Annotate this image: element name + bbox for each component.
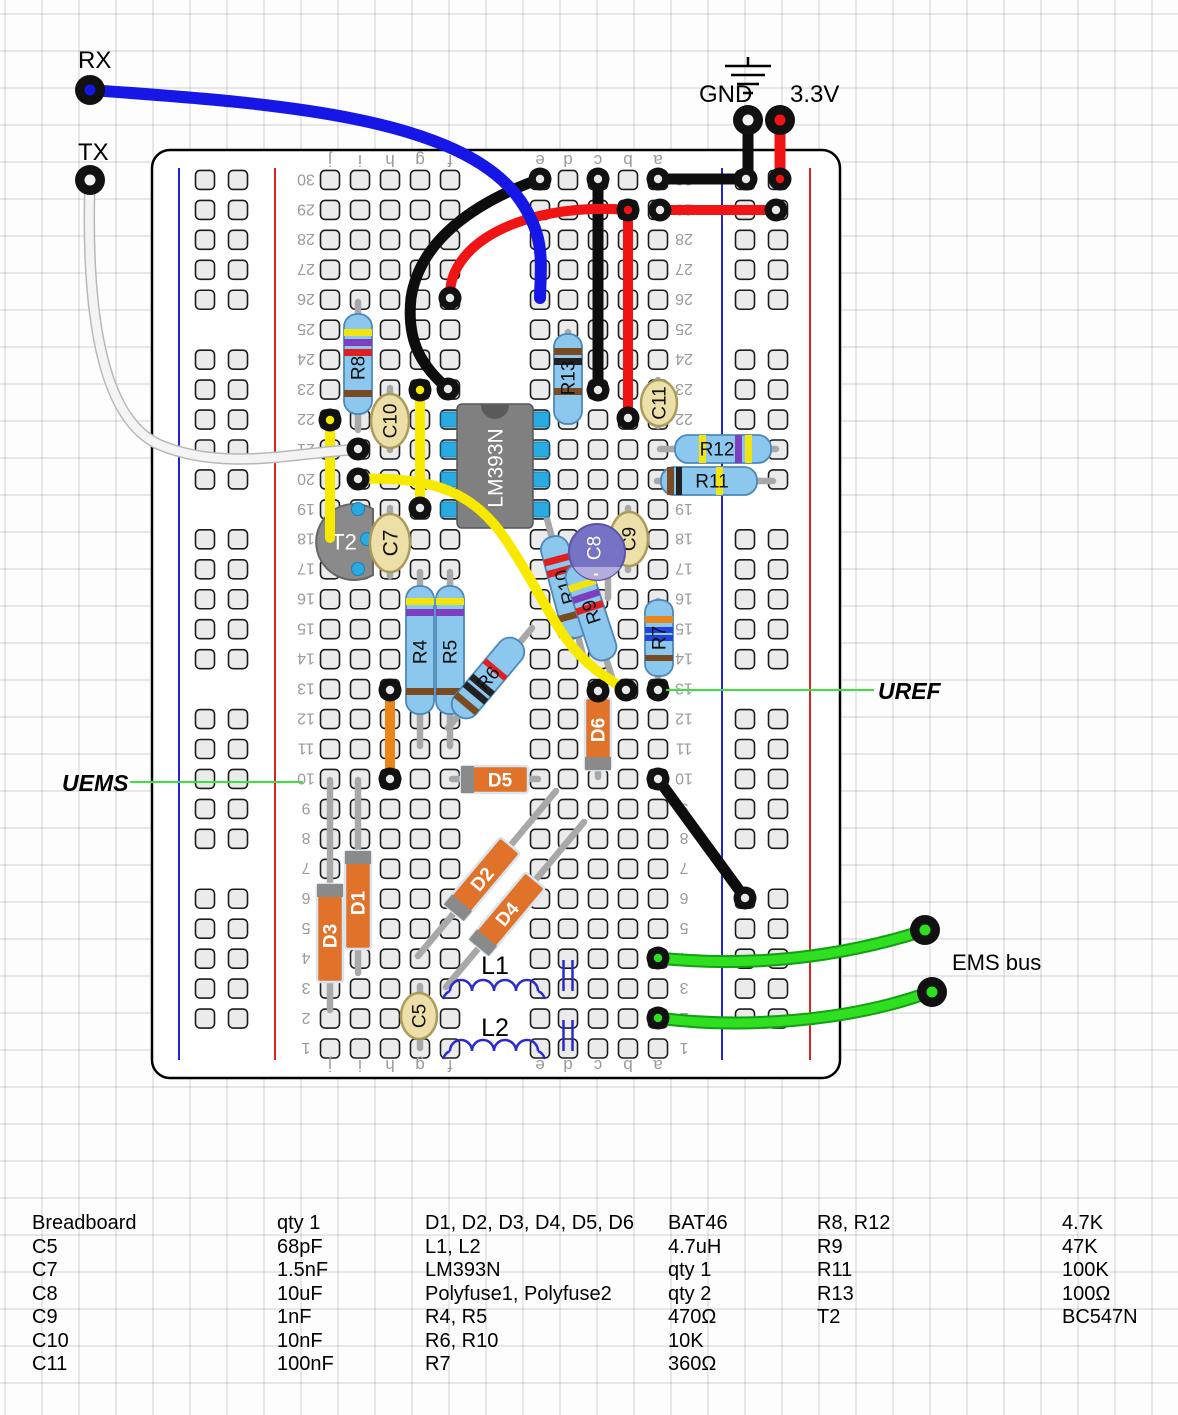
part-name: C7 (32, 1259, 277, 1283)
breadboard-hole (381, 919, 400, 938)
breadboard-hole (736, 230, 755, 249)
breadboard-hole (559, 710, 578, 729)
breadboard-hole (649, 1039, 668, 1058)
resistor-band (406, 688, 434, 695)
breadboard-hole (589, 410, 608, 429)
part-value: 100K (1062, 1259, 1109, 1283)
column-letter-label: b (623, 151, 632, 170)
row-number-label: 26 (675, 290, 693, 307)
row-number-label: 15 (675, 620, 693, 637)
row-number-label: 22 (297, 410, 315, 427)
diode-label: D1 (349, 890, 370, 915)
resistor-band (735, 435, 742, 463)
column-letter-label: i (358, 151, 362, 170)
part-name: L1, L2 (425, 1236, 668, 1260)
row-number-label: 6 (679, 889, 688, 906)
breadboard-hole (769, 230, 788, 249)
row-number-label: 23 (675, 380, 693, 397)
ring-hole (594, 687, 602, 695)
row-number-label: 19 (297, 500, 315, 517)
breadboard-hole (196, 949, 215, 968)
breadboard-hole (531, 680, 550, 699)
breadboard-hole (321, 1039, 340, 1058)
breadboard-hole (441, 320, 460, 339)
breadboard-hole (229, 590, 248, 609)
row-number-label: 3 (679, 979, 688, 996)
resistor-R8[interactable]: R8 (344, 314, 372, 414)
breadboard-hole (589, 1009, 608, 1028)
breadboard-hole (559, 500, 578, 519)
breadboard-hole (411, 769, 430, 788)
breadboard-hole (229, 979, 248, 998)
diode-D5[interactable]: D5 (461, 766, 528, 793)
diode-D6[interactable]: D6 (585, 698, 611, 770)
3v3-label: 3.3V (790, 81, 839, 108)
inductor-label: L2 (481, 1014, 509, 1042)
row-number-label: 12 (675, 709, 693, 726)
ems-pin-hole (927, 987, 938, 998)
row-number-label: 12 (297, 709, 315, 726)
breadboard-hole (196, 829, 215, 848)
breadboard-hole (649, 889, 668, 908)
breadboard-hole (736, 710, 755, 729)
part-name: R7 (425, 1353, 668, 1377)
breadboard-hole (619, 919, 638, 938)
row-number-label: 16 (297, 590, 315, 607)
breadboard-hole (769, 650, 788, 669)
breadboard-hole (769, 710, 788, 729)
breadboard-hole (619, 799, 638, 818)
part-value: 47K (1062, 1236, 1098, 1260)
ring-hole (416, 386, 424, 394)
transistor-pin (352, 563, 365, 576)
row-number-label: 9 (301, 799, 310, 816)
breadboard-hole (531, 710, 550, 729)
breadboard-hole (559, 1009, 578, 1028)
breadboard-hole (229, 260, 248, 279)
resistor-band (667, 467, 674, 495)
row-number-label: 3 (301, 979, 310, 996)
ems-pin-hole (920, 925, 931, 936)
breadboard-hole (769, 380, 788, 399)
ic-pin (533, 442, 549, 457)
parts-row: R6, R1010K (425, 1330, 728, 1354)
resistor-band (436, 598, 464, 605)
rx-label: RX (78, 47, 111, 74)
breadboard-hole (769, 410, 788, 429)
column-letter-label: d (563, 151, 572, 170)
breadboard-hole (229, 470, 248, 489)
ic-pin (533, 412, 549, 427)
capacitor-C7[interactable]: C7 (370, 514, 410, 572)
breadboard-hole (559, 979, 578, 998)
breadboard-hole (196, 470, 215, 489)
part-value: 10K (668, 1330, 704, 1354)
breadboard-hole (196, 560, 215, 579)
breadboard-hole (559, 170, 578, 189)
row-number-label: 25 (297, 320, 315, 337)
breadboard-hole (769, 260, 788, 279)
ems-bus-label: EMS bus (952, 950, 1041, 975)
gnd-label: GND (699, 81, 752, 108)
breadboard-hole (559, 260, 578, 279)
breadboard-hole (619, 769, 638, 788)
breadboard-hole (381, 170, 400, 189)
breadboard-hole (351, 200, 370, 219)
row-number-label: 4 (301, 949, 310, 966)
breadboard-hole (229, 170, 248, 189)
breadboard-hole (351, 1039, 370, 1058)
breadboard-hole (321, 680, 340, 699)
breadboard-hole (381, 889, 400, 908)
row-number-label: 1 (301, 1039, 310, 1056)
resistor-R4[interactable]: R4 (406, 586, 434, 714)
row-number-label: 22 (675, 410, 693, 427)
breadboard-hole (381, 320, 400, 339)
part-name: R8, R12 (817, 1212, 1062, 1236)
breadboard-hole (619, 710, 638, 729)
column-letter-label: i (358, 1056, 362, 1075)
part-name: Polyfuse1, Polyfuse2 (425, 1283, 668, 1307)
parts-row: C11100nF (32, 1353, 334, 1377)
capacitor-label: C11 (650, 386, 671, 419)
part-name: C9 (32, 1306, 277, 1330)
part-name: R13 (817, 1283, 1062, 1307)
breadboard-hole (559, 859, 578, 878)
column-letter-label: g (415, 151, 424, 170)
breadboard-hole (321, 260, 340, 279)
rx-pin-hole (85, 85, 96, 96)
breadboard-hole (559, 290, 578, 309)
transistor-label: T2 (331, 530, 357, 555)
breadboard-hole (619, 829, 638, 848)
resistor-label: R12 (700, 440, 735, 461)
row-number-label: 11 (298, 739, 315, 756)
breadboard-hole (196, 650, 215, 669)
uems-label: UEMS (62, 770, 129, 796)
breadboard-hole (321, 740, 340, 759)
breadboard-hole (381, 829, 400, 848)
breadboard-hole (736, 829, 755, 848)
breadboard-hole (196, 620, 215, 639)
breadboard-hole (736, 410, 755, 429)
breadboard-hole (351, 260, 370, 279)
column-letter-label: c (593, 151, 602, 170)
resistor-band (436, 609, 464, 616)
breadboard-hole (196, 230, 215, 249)
diode-label: D5 (488, 771, 513, 792)
capacitor-C10[interactable]: C10 (371, 394, 409, 448)
ic-lm393n[interactable]: LM393N (441, 404, 549, 528)
row-number-label: 10 (675, 769, 693, 786)
column-letter-label: b (623, 1056, 632, 1075)
part-name: Breadboard (32, 1212, 277, 1236)
breadboard-hole (196, 200, 215, 219)
capacitor-minus: - (593, 566, 598, 583)
breadboard-hole (351, 680, 370, 699)
breadboard-hole (589, 1039, 608, 1058)
resistor-R13[interactable]: R13 (554, 334, 582, 424)
parts-row: R4, R5470Ω (425, 1306, 728, 1330)
breadboard-hole (229, 560, 248, 579)
breadboard-hole (649, 560, 668, 579)
breadboard-hole (196, 740, 215, 759)
breadboard-hole (736, 979, 755, 998)
part-value: 4.7uH (668, 1236, 721, 1260)
breadboard-hole (196, 979, 215, 998)
parts-row: R947K (817, 1236, 1138, 1260)
row-number-label: 19 (675, 500, 693, 517)
breadboard-hole (381, 200, 400, 219)
breadboard-hole (649, 500, 668, 519)
breadboard-hole (736, 530, 755, 549)
breadboard-hole (229, 769, 248, 788)
part-value: 4.7K (1062, 1212, 1103, 1236)
part-value: 360Ω (668, 1353, 716, 1377)
parts-row: D1, D2, D3, D4, D5, D6BAT46 (425, 1212, 728, 1236)
breadboard-hole (321, 170, 340, 189)
ring-hole (326, 416, 334, 424)
breadboard-hole (196, 590, 215, 609)
breadboard-hole (589, 919, 608, 938)
part-value: 100Ω (1062, 1283, 1110, 1307)
breadboard-hole (619, 949, 638, 968)
breadboard-hole (769, 829, 788, 848)
column-letter-label: f (447, 1056, 452, 1075)
breadboard-hole (229, 410, 248, 429)
breadboard-hole (351, 979, 370, 998)
breadboard-hole (441, 530, 460, 549)
ic-pin (533, 502, 549, 517)
resistor-label: R13 (559, 361, 580, 396)
resistor-R12[interactable]: R12 (675, 435, 771, 463)
breadboard-hole (229, 919, 248, 938)
breadboard-hole (441, 350, 460, 369)
breadboard-hole (736, 740, 755, 759)
part-name: R11 (817, 1259, 1062, 1283)
row-number-label: 5 (301, 919, 310, 936)
column-letter-label: h (385, 151, 394, 170)
breadboard-hole (736, 769, 755, 788)
ic-pin (441, 412, 457, 427)
resistor-R11[interactable]: R11 (661, 467, 757, 495)
breadboard-hole (351, 740, 370, 759)
breadboard-hole (229, 949, 248, 968)
breadboard-hole (196, 350, 215, 369)
breadboard-hole (769, 919, 788, 938)
column-letter-label: j (328, 151, 333, 170)
breadboard-hole (769, 799, 788, 818)
breadboard-hole (381, 1039, 400, 1058)
resistor-band (554, 348, 582, 355)
breadboard-hole (351, 620, 370, 639)
row-number-label: 28 (675, 230, 693, 247)
breadboard-hole (736, 260, 755, 279)
row-number-label: 26 (297, 290, 315, 307)
breadboard-hole (736, 290, 755, 309)
part-value: 470Ω (668, 1306, 716, 1330)
breadboard-hole (736, 350, 755, 369)
breadboard-hole (531, 650, 550, 669)
resistor-band (406, 598, 434, 605)
breadboard-hole (411, 799, 430, 818)
breadboard-hole (531, 1009, 550, 1028)
diode-band (585, 757, 611, 770)
breadboard-hole (321, 290, 340, 309)
diode-D3[interactable]: D3 (317, 884, 343, 982)
breadboard-hole (589, 500, 608, 519)
breadboard-hole (229, 1009, 248, 1028)
breadboard-hole (559, 949, 578, 968)
breadboard-hole (321, 350, 340, 369)
resistor-label: R11 (695, 472, 728, 493)
breadboard-hole (559, 769, 578, 788)
breadboard-hole (196, 919, 215, 938)
diode-D1[interactable]: D1 (345, 851, 371, 949)
part-name: C5 (32, 1236, 277, 1260)
breadboard-hole (736, 590, 755, 609)
capacitor-C11[interactable]: C11 (641, 380, 677, 426)
breadboard-hole (559, 740, 578, 759)
parts-list-left: Breadboardqty 1 C568pF C71.5nF C810uF C9… (32, 1212, 334, 1377)
parts-row: R13100Ω (817, 1283, 1138, 1307)
row-number-label: 10 (297, 769, 315, 786)
capacitor-C5[interactable]: C5 (401, 993, 437, 1039)
diode-band (461, 766, 474, 793)
breadboard-hole (619, 889, 638, 908)
breadboard-hole (381, 650, 400, 669)
row-number-label: 17 (675, 560, 693, 577)
breadboard-hole (769, 889, 788, 908)
breadboard-hole (531, 829, 550, 848)
breadboard-hole (531, 740, 550, 759)
row-number-label: 29 (297, 200, 315, 217)
row-number-label: 24 (297, 350, 315, 367)
breadboard-hole (196, 290, 215, 309)
row-number-label: 18 (297, 530, 315, 547)
breadboard-hole (351, 650, 370, 669)
row-number-label: 23 (297, 380, 315, 397)
breadboard-hole (381, 799, 400, 818)
breadboard-hole (351, 230, 370, 249)
row-number-label: 30 (297, 170, 315, 187)
breadboard-hole (441, 949, 460, 968)
parts-row: R7360Ω (425, 1353, 728, 1377)
breadboard-hole (589, 470, 608, 489)
ring-hole (742, 175, 750, 183)
row-number-label: 27 (675, 260, 693, 277)
ic-pin (533, 472, 549, 487)
breadboard-hole (559, 440, 578, 459)
parts-list-middle: D1, D2, D3, D4, D5, D6BAT46 L1, L24.7uH … (425, 1212, 728, 1377)
breadboard-hole (649, 290, 668, 309)
breadboard-hole (441, 799, 460, 818)
breadboard-hole (649, 230, 668, 249)
ring-hole (741, 894, 749, 902)
breadboard-hole (769, 560, 788, 579)
breadboard-hole (619, 590, 638, 609)
ring-hole (354, 445, 362, 453)
ring-hole (594, 386, 602, 394)
parts-row: R8, R124.7K (817, 1212, 1138, 1236)
tx-label: TX (78, 139, 109, 166)
breadboard-hole (736, 650, 755, 669)
resistor-band (344, 329, 372, 336)
capacitor-label: C5 (410, 1004, 431, 1028)
breadboard-hole (769, 590, 788, 609)
ring-hole (386, 775, 394, 783)
row-number-label: 18 (675, 530, 693, 547)
breadboard-hole (531, 949, 550, 968)
breadboard-hole (351, 590, 370, 609)
resistor-band (344, 339, 372, 346)
breadboard-hole (736, 919, 755, 938)
row-number-label: 20 (297, 470, 315, 487)
ring-hole (386, 686, 394, 694)
part-value: 10uF (277, 1283, 323, 1307)
breadboard-hole (381, 859, 400, 878)
breadboard-hole (769, 290, 788, 309)
breadboard-hole (229, 230, 248, 249)
breadboard-hole (321, 590, 340, 609)
part-name: R6, R10 (425, 1330, 668, 1354)
breadboard-hole (196, 769, 215, 788)
breadboard-hole (381, 290, 400, 309)
breadboard-hole (649, 350, 668, 369)
breadboard-hole (196, 260, 215, 279)
capacitor-label: C10 (381, 404, 402, 439)
resistor-band (645, 655, 673, 661)
row-number-label: 17 (297, 560, 315, 577)
breadboard-hole (649, 859, 668, 878)
breadboard-hole (381, 230, 400, 249)
breadboard-hole (196, 380, 215, 399)
breadboard-hole (321, 710, 340, 729)
breadboard-hole (769, 350, 788, 369)
resistor-band (406, 609, 434, 616)
ic-pin (441, 502, 457, 517)
breadboard-hole (229, 799, 248, 818)
breadboard-hole (589, 829, 608, 848)
breadboard-hole (589, 440, 608, 459)
breadboard-hole (351, 710, 370, 729)
ring-hole (654, 954, 662, 962)
breadboard-hole (196, 170, 215, 189)
part-name: LM393N (425, 1259, 668, 1283)
breadboard-hole (196, 799, 215, 818)
resistor-label: R4 (411, 639, 432, 664)
parts-row: C568pF (32, 1236, 334, 1260)
breadboard-hole (229, 290, 248, 309)
resistor-band (344, 349, 372, 356)
column-letter-label: a (653, 151, 663, 170)
part-value: 68pF (277, 1236, 323, 1260)
part-name: C11 (32, 1353, 277, 1377)
ring-hole (446, 294, 454, 302)
breadboard-hole (736, 620, 755, 639)
ring-hole (594, 175, 602, 183)
breadboard-hole (619, 620, 638, 639)
breadboard-hole (619, 1039, 638, 1058)
breadboard-hole (321, 320, 340, 339)
breadboard-hole (321, 650, 340, 669)
resistor-R7[interactable]: R7 (645, 600, 673, 676)
breadboard-hole (619, 440, 638, 459)
breadboard-hole (381, 260, 400, 279)
breadboard-hole (619, 740, 638, 759)
part-name: D1, D2, D3, D4, D5, D6 (425, 1212, 668, 1236)
diode-band (317, 884, 343, 897)
